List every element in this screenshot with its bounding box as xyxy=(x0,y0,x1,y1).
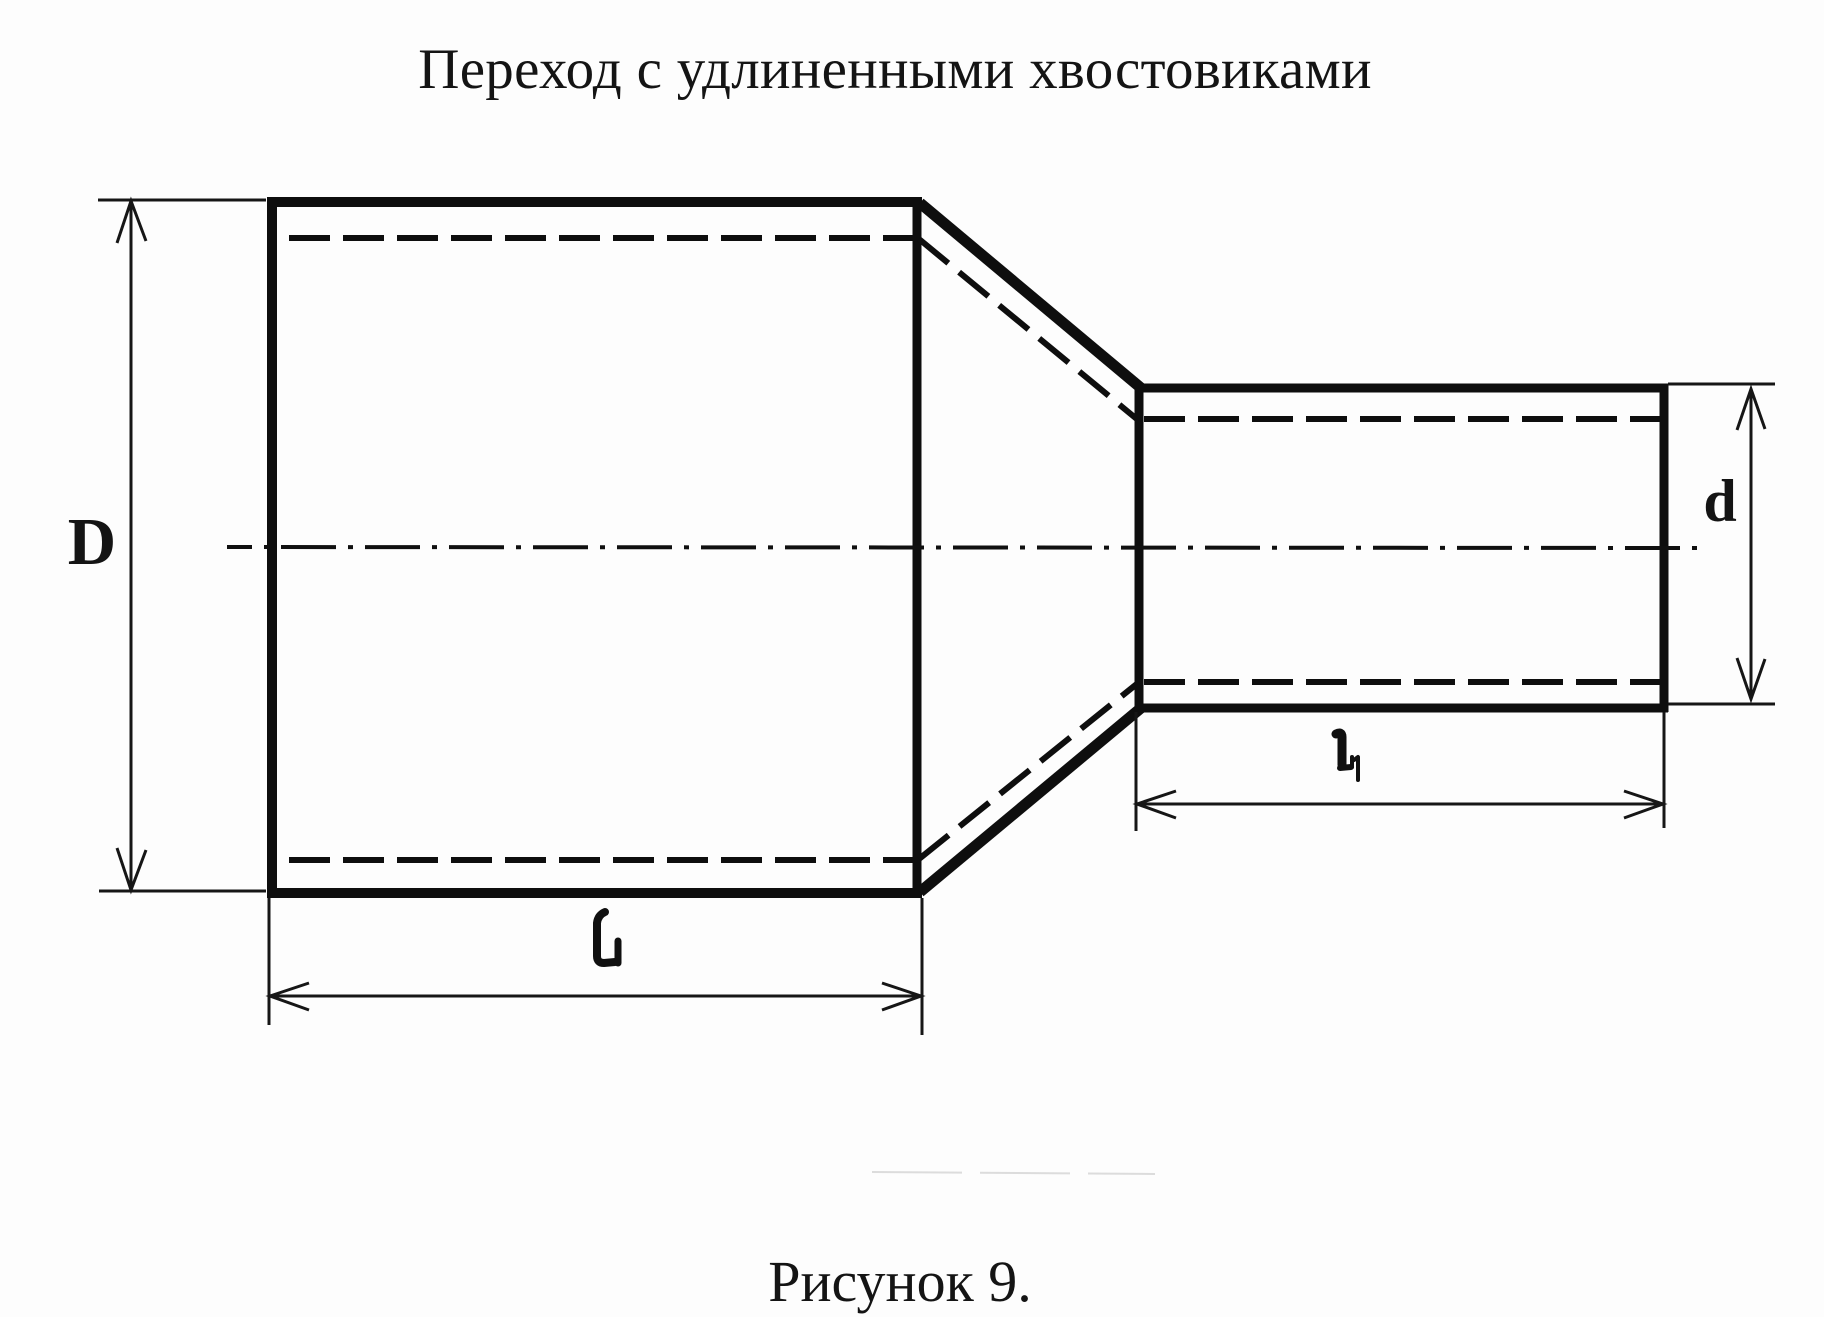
svg-text:D: D xyxy=(68,505,116,579)
svg-text:Переход с удлиненными хвостови: Переход с удлиненными хвостовиками xyxy=(418,38,1372,101)
svg-text:Рисунок 9.: Рисунок 9. xyxy=(768,1249,1032,1314)
svg-text:d: d xyxy=(1703,468,1736,534)
